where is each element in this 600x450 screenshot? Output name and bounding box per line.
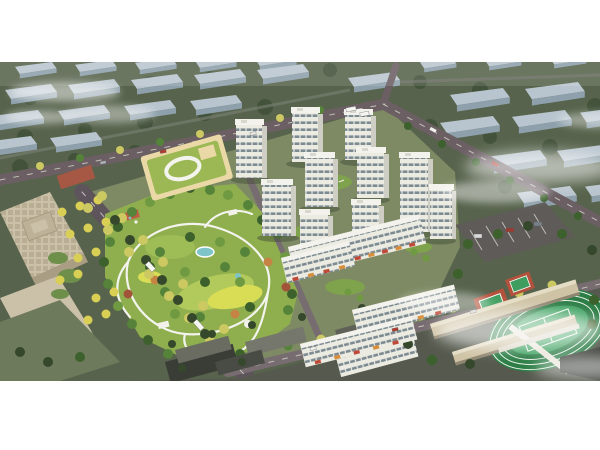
residential-tower bbox=[257, 179, 299, 242]
aerial-site-rendering bbox=[0, 62, 600, 381]
parked-car bbox=[534, 222, 542, 226]
rendering-scene bbox=[0, 62, 600, 381]
parked-car bbox=[506, 228, 514, 232]
residential-tower bbox=[231, 119, 271, 184]
page-canvas bbox=[0, 0, 600, 450]
parked-car bbox=[474, 234, 482, 238]
roof-garden bbox=[48, 252, 68, 264]
residential-tower bbox=[300, 152, 340, 213]
roof-garden bbox=[51, 289, 69, 299]
park-pond bbox=[196, 247, 214, 257]
residential-tower bbox=[352, 147, 390, 204]
